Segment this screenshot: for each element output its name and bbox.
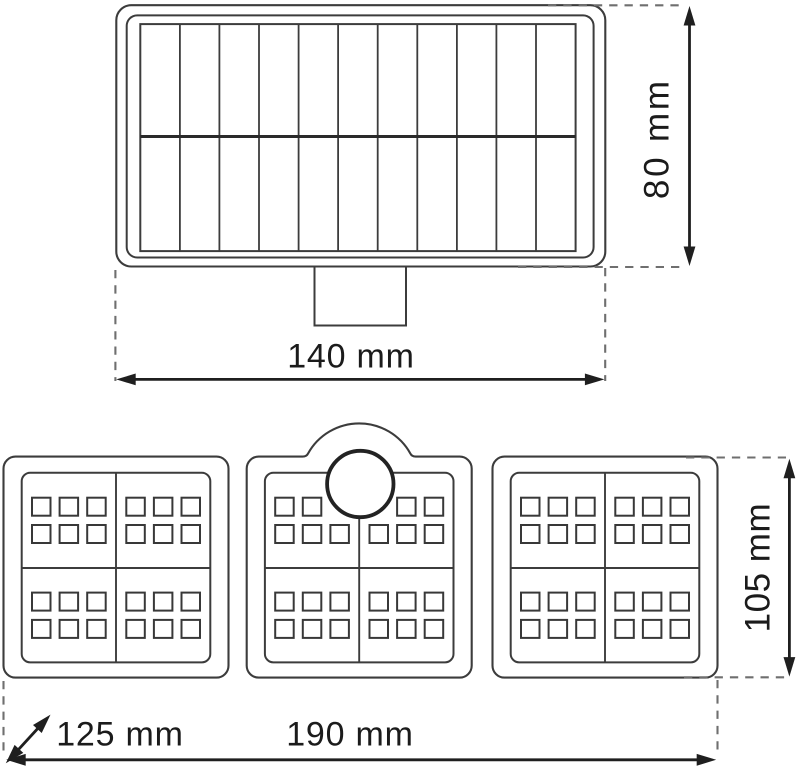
svg-text:140 mm: 140 mm — [287, 337, 415, 375]
svg-text:80 mm: 80 mm — [637, 78, 676, 199]
svg-text:125 mm: 125 mm — [56, 716, 184, 754]
svg-text:105 mm: 105 mm — [739, 503, 778, 632]
svg-text:190 mm: 190 mm — [286, 716, 414, 754]
